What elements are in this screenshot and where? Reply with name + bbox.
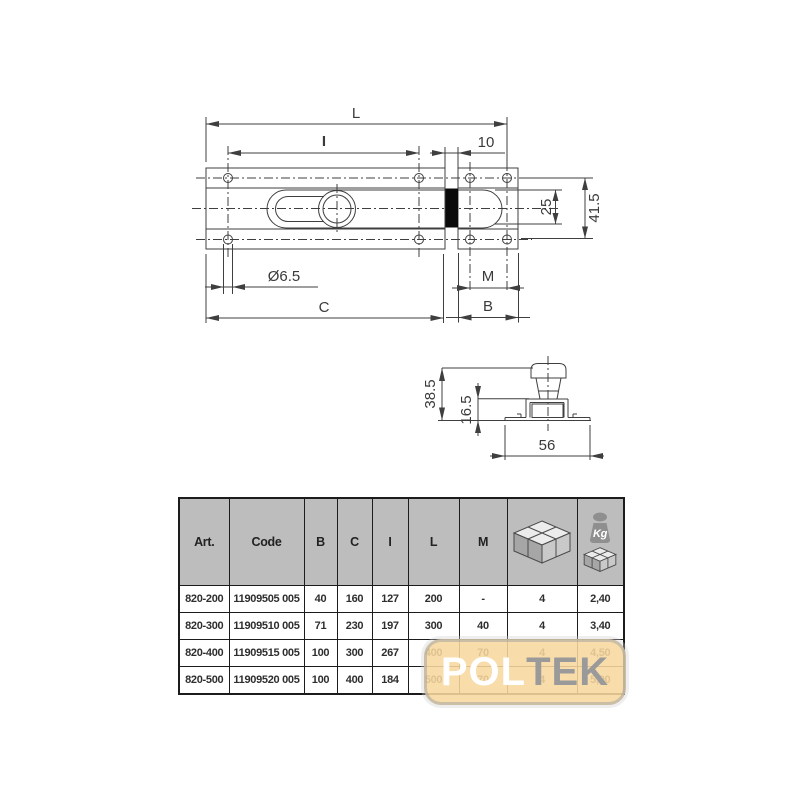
cell-art: 820-400	[179, 640, 229, 667]
cell-b: 40	[304, 586, 337, 613]
dim-label-56: 56	[539, 437, 556, 454]
col-header-l: L	[408, 498, 459, 586]
cell-art: 820-200	[179, 586, 229, 613]
col-header-b: B	[304, 498, 337, 586]
dim-label-10: 10	[478, 134, 495, 151]
cell-b: 100	[304, 640, 337, 667]
dim-label-I: I	[322, 133, 326, 150]
col-header-i: I	[372, 498, 408, 586]
cell-b: 71	[304, 613, 337, 640]
cell-c: 300	[337, 640, 372, 667]
kg-weight-icon: Kg	[583, 512, 617, 544]
dim-I: I	[228, 133, 419, 156]
watermark-pol: POL	[441, 652, 526, 692]
dim-label-16-5: 16.5	[458, 395, 475, 424]
cell-i: 267	[372, 640, 408, 667]
dim-10: 10	[430, 134, 505, 168]
col-header-art: Art.	[179, 498, 229, 586]
datasheet-page: L I 10	[0, 0, 800, 800]
cell-c: 400	[337, 667, 372, 695]
cell-kg: 3,40	[577, 613, 624, 640]
table-row: 820-300 11909510 005 71 230 197 300 40 4…	[179, 613, 624, 640]
col-header-package	[507, 498, 577, 586]
dim-label-M: M	[482, 268, 495, 285]
dim-label-C: C	[319, 299, 330, 316]
cell-pack: 4	[507, 586, 577, 613]
dim-dia-6-5: Ø6.5	[205, 244, 318, 294]
table-row: 820-200 11909505 005 40 160 127 200 - 4 …	[179, 586, 624, 613]
col-header-m: M	[459, 498, 507, 586]
cell-l: 300	[408, 613, 459, 640]
table-header-row: Art. Code B C I L M	[179, 498, 624, 586]
watermark-tek: TEK	[526, 652, 609, 692]
cell-c: 160	[337, 586, 372, 613]
cell-i: 127	[372, 586, 408, 613]
dim-25: 25	[495, 190, 562, 224]
poltek-watermark: POLTEK	[424, 639, 626, 705]
col-header-c: C	[337, 498, 372, 586]
col-header-weight: Kg	[577, 498, 624, 586]
small-package-icon	[582, 546, 618, 572]
cell-b: 100	[304, 667, 337, 695]
col-header-code: Code	[229, 498, 304, 586]
cell-i: 197	[372, 613, 408, 640]
cell-code: 11909510 005	[229, 613, 304, 640]
cell-pack: 4	[507, 613, 577, 640]
dim-label-B: B	[483, 298, 493, 315]
side-view-drawing: 38.5 16.5 56	[422, 356, 604, 460]
cell-m: -	[459, 586, 507, 613]
dim-16-5: 16.5	[458, 383, 529, 436]
cell-kg: 2,40	[577, 586, 624, 613]
dim-56: 56	[490, 425, 604, 460]
bolt-black-section	[446, 189, 459, 228]
dim-label-dia: Ø6.5	[268, 268, 301, 285]
dim-label-25: 25	[538, 199, 555, 216]
cell-i: 184	[372, 667, 408, 695]
cell-l: 200	[408, 586, 459, 613]
cell-code: 11909515 005	[229, 640, 304, 667]
dim-label-41-5: 41.5	[586, 193, 603, 222]
cell-art: 820-300	[179, 613, 229, 640]
dim-label-L: L	[352, 105, 360, 122]
dim-label-38-5: 38.5	[422, 379, 439, 408]
cell-code: 11909505 005	[229, 586, 304, 613]
kg-label: Kg	[593, 528, 608, 540]
cell-code: 11909520 005	[229, 667, 304, 695]
cell-art: 820-500	[179, 667, 229, 695]
dim-M: M	[452, 268, 524, 291]
cell-c: 230	[337, 613, 372, 640]
cell-m: 40	[459, 613, 507, 640]
top-view-drawing: L I 10	[192, 105, 603, 323]
package-icon	[511, 518, 573, 564]
technical-drawing: L I 10	[0, 0, 800, 492]
